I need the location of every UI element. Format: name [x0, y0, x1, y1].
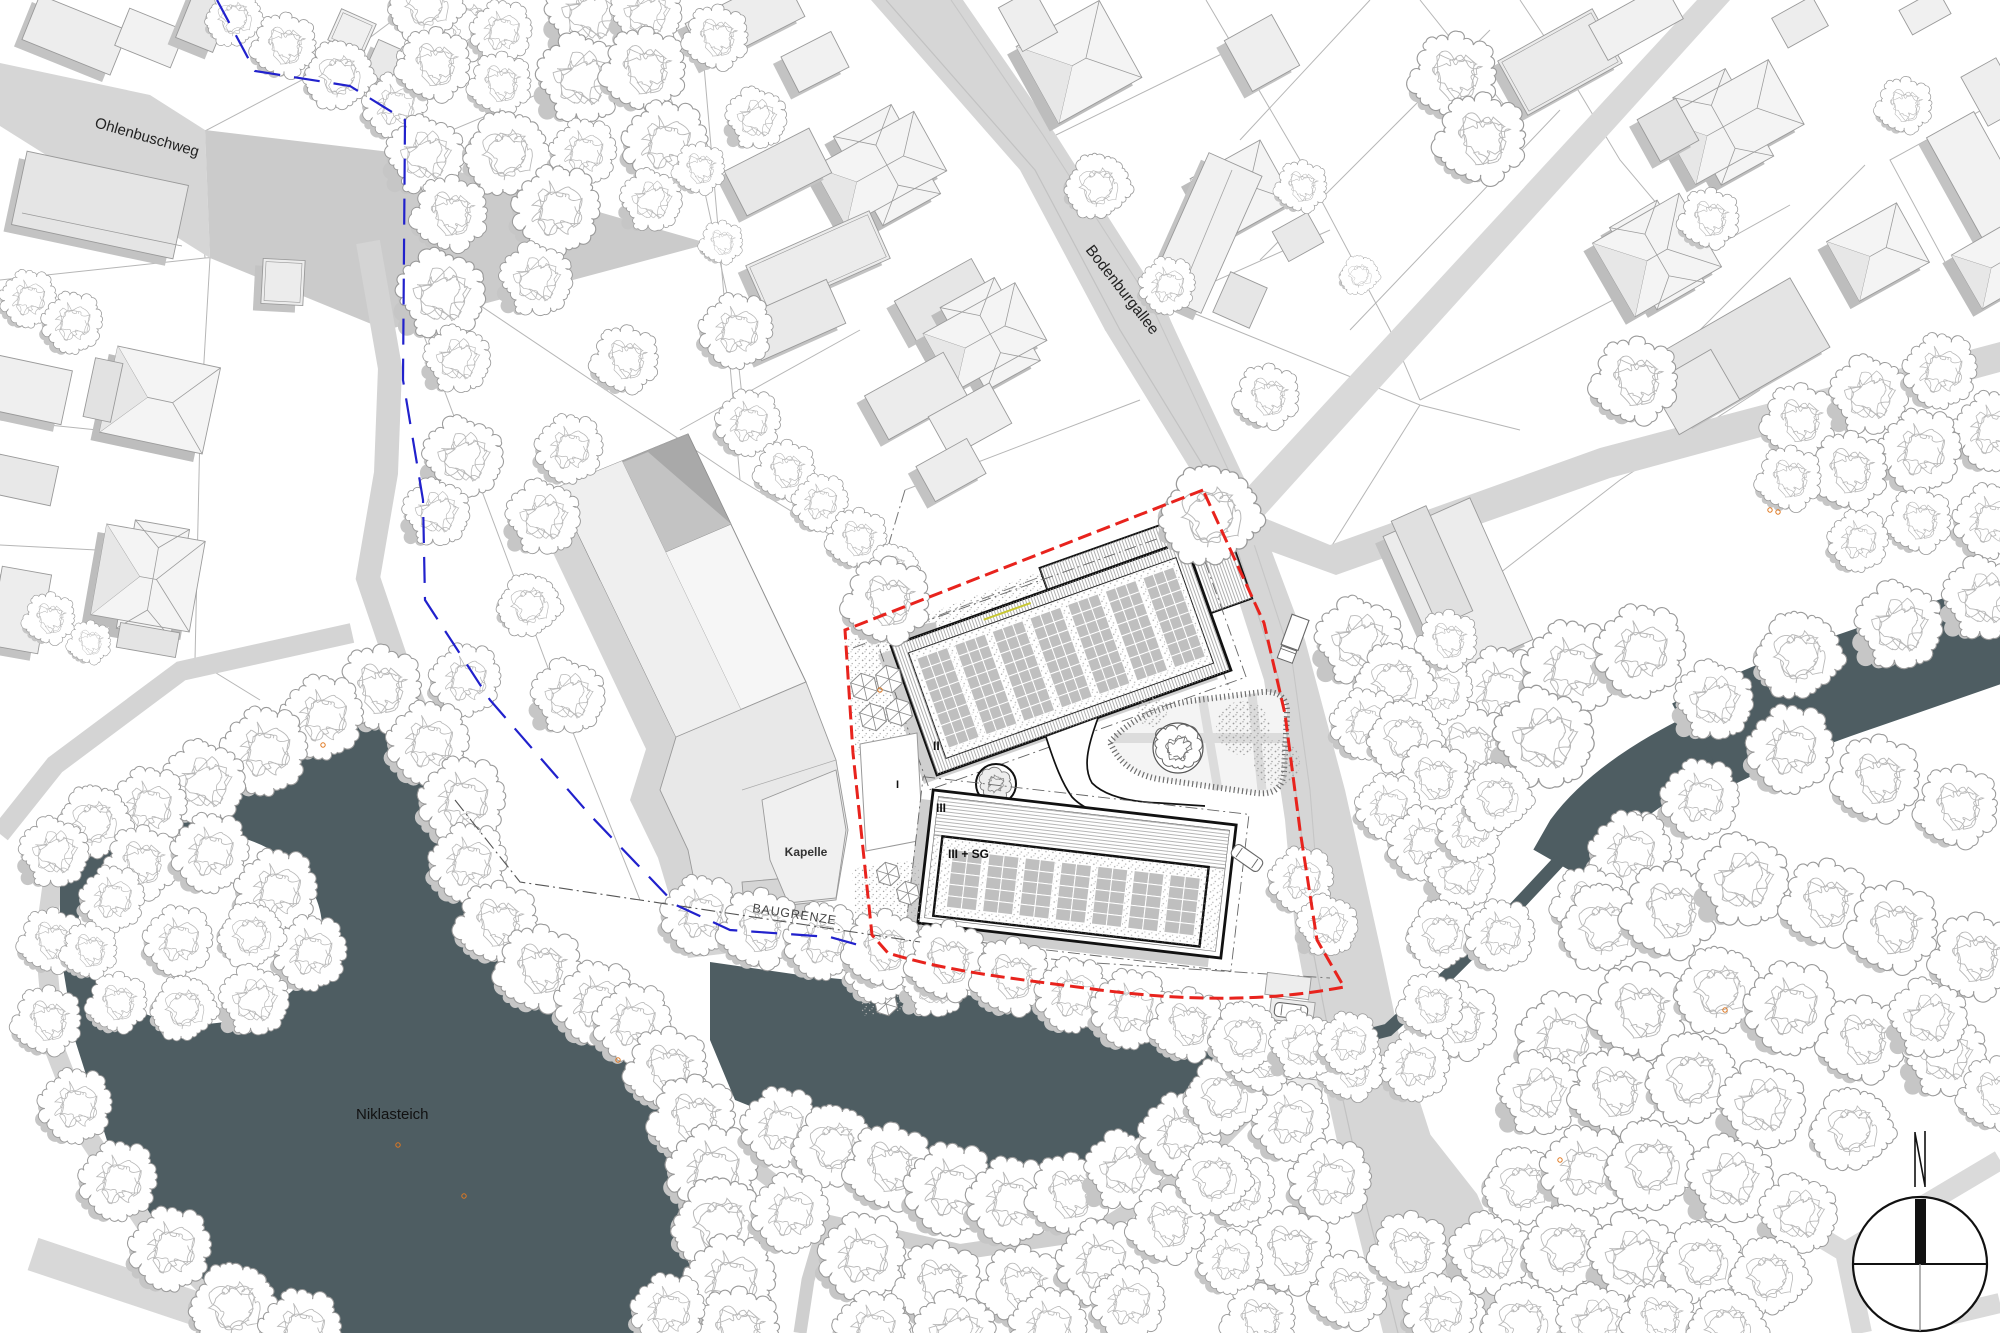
svg-text:Kapelle: Kapelle: [785, 845, 828, 859]
svg-text:I: I: [896, 779, 899, 791]
svg-text:II: II: [933, 739, 940, 753]
svg-text:III + SG: III + SG: [948, 847, 989, 861]
svg-text:Niklasteich: Niklasteich: [356, 1106, 429, 1123]
svg-text:III: III: [936, 801, 946, 815]
